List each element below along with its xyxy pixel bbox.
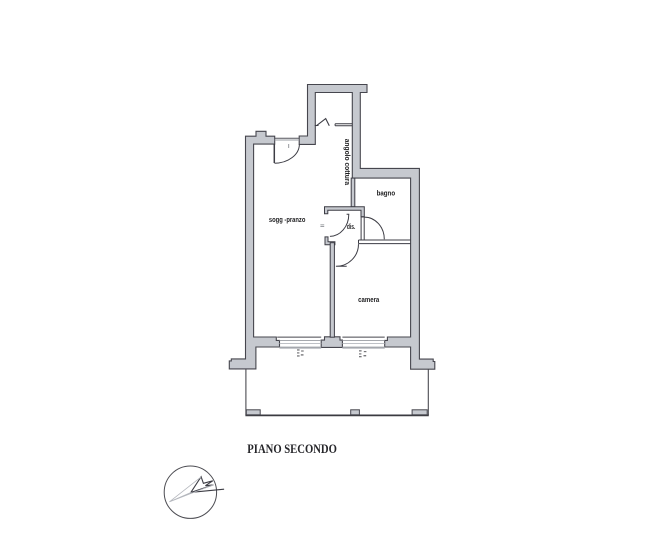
svg-text:camera: camera [358, 297, 379, 304]
svg-text:bagno: bagno [377, 190, 396, 197]
svg-text:dis.: dis. [347, 224, 356, 231]
svg-text:sogg -pranzo: sogg -pranzo [269, 217, 306, 224]
svg-text:PIANO SECONDO: PIANO SECONDO [247, 441, 337, 456]
svg-text:angolo cottura: angolo cottura [343, 139, 350, 185]
